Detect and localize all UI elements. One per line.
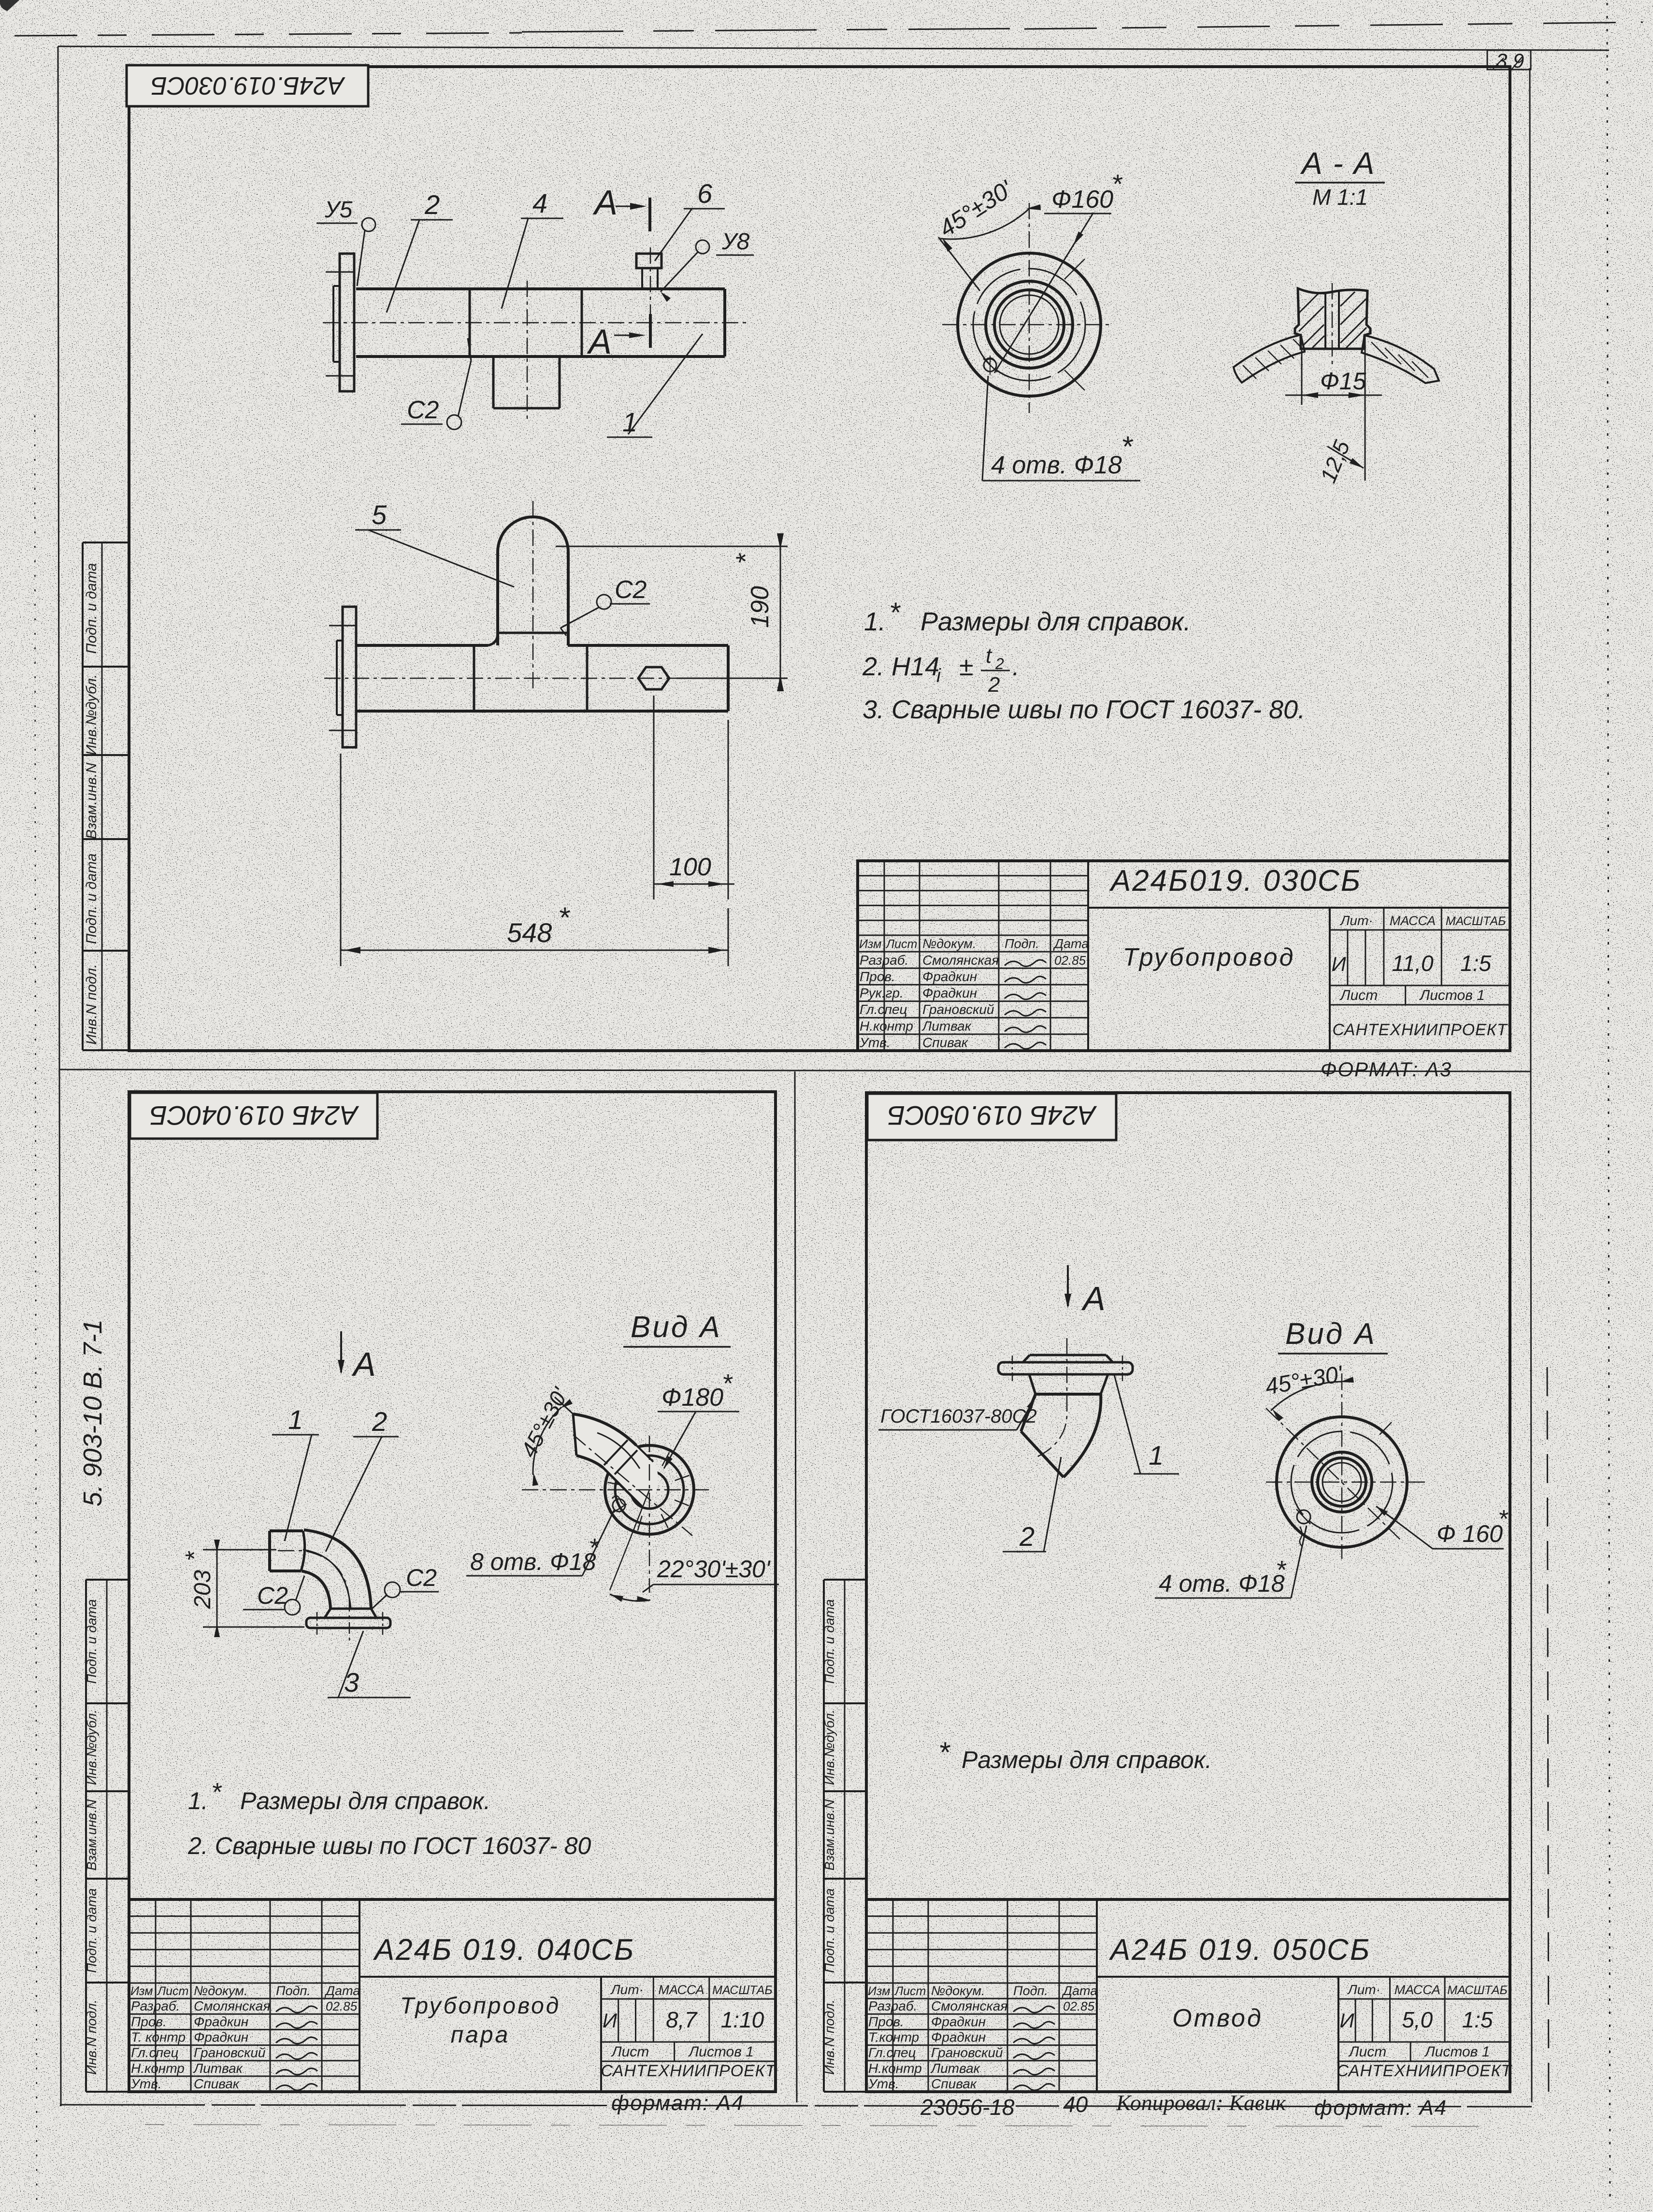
svg-text:Листов 1: Листов 1 [688,2044,754,2060]
svg-text:Лит·: Лит· [1339,913,1373,928]
svg-text:Утв.: Утв. [130,2076,162,2091]
svg-text:5. 903-10 В. 7-1: 5. 903-10 В. 7-1 [78,1319,107,1506]
svg-text:Фрадкин: Фрадкин [922,985,977,1000]
svg-text:Размеры для справок.: Размеры для справок. [920,607,1191,636]
svg-text:Дата: Дата [1062,1984,1097,1998]
svg-text:3. Сварные швы по ГОСТ 16: 3. Сварные швы по ГОСТ 16037- 80. [862,695,1305,724]
svg-text:Инв.N подл.: Инв.N подл. [822,1999,837,2075]
svg-text:2. Н14: 2. Н14 [862,652,939,681]
svg-text:И: И [1340,2009,1355,2032]
svg-text:И: И [603,2009,618,2032]
svg-text:Лист: Лист [894,1984,926,1998]
svg-text:№докум.: №докум. [931,1984,985,1998]
svg-text:*: * [730,553,761,564]
svg-text:23056-18: 23056-18 [920,2095,1015,2120]
svg-text:А24Б.019.030СБ: А24Б.019.030СБ [151,71,345,100]
svg-text:А: А [1081,1280,1106,1317]
svg-text:Размеры для справок.: Размеры для справок. [962,1746,1212,1773]
svg-text:Литвак: Литвак [921,1018,972,1033]
svg-text:190: 190 [746,586,774,628]
svg-text:Гл.спец: Гл.спец [131,2045,179,2060]
svg-text:А: А [587,323,612,361]
svg-text:Размеры для справок.: Размеры для справок. [240,1787,490,1814]
svg-text:i: i [936,665,941,686]
svg-text:*: * [558,901,570,934]
svg-text:МАССА: МАССА [1390,913,1436,928]
svg-text:Подп. и дата: Подп. и дата [84,1599,99,1684]
svg-text:2. Сварные швы по ГОСТ 16: 2. Сварные швы по ГОСТ 16037- 80 [187,1832,591,1859]
svg-text:548: 548 [507,917,552,948]
svg-text:МАСШТАБ: МАСШТАБ [1447,1984,1508,1997]
svg-text:Фрадкин: Фрадкин [931,2014,986,2029]
svg-text:2: 2 [1019,1521,1035,1552]
svg-text:Изм: Изм [859,938,881,951]
svg-text:Вид А: Вид А [1285,1317,1377,1351]
svg-text:40: 40 [1063,2092,1088,2117]
svg-text:Фрадкин: Фрадкин [194,2030,248,2045]
svg-text:Изм: Изм [868,1984,890,1998]
svg-text:Лит·: Лит· [610,1982,643,1997]
svg-text:*: * [1498,1505,1509,1533]
svg-text:5: 5 [372,499,387,530]
svg-text:2: 2 [424,189,440,220]
svg-text:Утв.: Утв. [868,2076,899,2091]
svg-text:02.85: 02.85 [326,1999,358,2013]
svg-text:1:10: 1:10 [721,2007,764,2032]
svg-text:1: 1 [288,1404,303,1435]
svg-text:Гл.спец: Гл.спец [860,1002,907,1017]
svg-text:*: * [722,1369,733,1398]
svg-text:Инв.N подл.: Инв.N подл. [84,1999,99,2075]
svg-text:1:5: 1:5 [1462,2007,1493,2032]
svg-text:Смолянская: Смолянская [931,1998,1007,2013]
svg-text:Копировал: Кавик: Копировал: Кавик [1116,2090,1286,2115]
svg-text:Ф160: Ф160 [1051,186,1113,214]
svg-text:2: 2 [372,1406,387,1437]
svg-text:Трубопровод: Трубопровод [400,1993,561,2019]
svg-text:22°30'±30': 22°30'±30' [657,1556,771,1583]
svg-text:8 отв. Ф18: 8 отв. Ф18 [470,1548,596,1575]
svg-text:Литвак: Литвак [193,2061,244,2076]
svg-text:пара: пара [451,2022,510,2048]
svg-text:203: 203 [190,1570,216,1609]
svg-text:Н.контр: Н.контр [868,2061,922,2076]
svg-text:Т.контр: Т.контр [868,2030,919,2045]
svg-text:А - А: А - А [1300,146,1375,181]
svg-text:3: 3 [344,1667,359,1698]
svg-text:*: * [181,1551,209,1561]
svg-text:Грановский: Грановский [194,2045,266,2060]
svg-text:Подп. и дата: Подп. и дата [84,854,100,944]
svg-text:Подп.: Подп. [1005,937,1039,951]
svg-text:Подп. и дата: Подп. и дата [84,1888,99,1973]
svg-text:4 отв. Ф18: 4 отв. Ф18 [991,451,1122,479]
svg-text:Фрадкин: Фрадкин [194,2014,248,2029]
svg-text:Инв.№дубл.: Инв.№дубл. [822,1710,837,1785]
svg-text:2: 2 [988,673,1000,697]
svg-text:Т. контр: Т. контр [131,2030,186,2045]
svg-text:А24Б 019.040СБ: А24Б 019.040СБ [150,1100,359,1131]
svg-text:02.85: 02.85 [1063,1999,1095,2013]
svg-text:*: * [1121,430,1133,463]
svg-text:формат: А4: формат: А4 [611,2091,744,2115]
svg-text:Н.контр: Н.контр [860,1018,913,1033]
svg-text:№докум.: №докум. [194,1984,247,1998]
svg-text:Пров.: Пров. [860,969,895,984]
svg-text:Лит·: Лит· [1347,1982,1380,1997]
svg-text:Листов 1: Листов 1 [1424,2044,1490,2060]
svg-text:Взам.инв.N: Взам.инв.N [822,1799,837,1870]
svg-text:*: * [1276,1556,1287,1584]
svg-text:Грановский: Грановский [922,1002,994,1017]
svg-text:ГОСТ16037-80С2: ГОСТ16037-80С2 [880,1406,1037,1427]
svg-text:А24Б019. 030СБ: А24Б019. 030СБ [1109,864,1362,898]
svg-text:Подп. и дата: Подп. и дата [822,1888,837,1973]
svg-text:МАСШТАБ: МАСШТАБ [1446,914,1506,928]
svg-text:Гл.спец: Гл.спец [868,2045,916,2060]
svg-text:Рук.гр.: Рук.гр. [860,985,904,1000]
svg-text:*: * [938,1736,950,1769]
svg-text:Лист: Лист [611,2044,649,2060]
svg-text:Пров.: Пров. [131,2014,167,2029]
svg-text:Отвод: Отвод [1172,2004,1263,2032]
svg-text:А: А [592,184,618,222]
svg-text:М 1:1: М 1:1 [1312,185,1368,210]
svg-text:Разраб.: Разраб. [131,1998,180,2013]
svg-text:±: ± [959,652,974,681]
svg-text:А24Б 019. 050СБ: А24Б 019. 050СБ [1108,1933,1371,1967]
svg-text:Лист: Лист [885,938,917,951]
svg-text:Смолянская: Смолянская [922,953,999,968]
svg-text:.: . [1012,652,1020,681]
svg-text:ФОРМАТ: А3: ФОРМАТ: А3 [1321,1058,1452,1081]
svg-text:МАСШТАБ: МАСШТАБ [712,1984,773,1997]
svg-text:У8: У8 [721,229,750,255]
svg-text:Смолянская: Смолянская [194,1998,270,2013]
svg-text:И: И [1331,953,1346,975]
svg-text:Лист: Лист [1348,2044,1386,2060]
svg-text:Ф 160: Ф 160 [1437,1520,1503,1547]
svg-text:Лист: Лист [1339,987,1378,1003]
svg-text:02.85: 02.85 [1054,953,1086,968]
svg-text:1.: 1. [188,1787,208,1814]
svg-text:формат: А4: формат: А4 [1314,2096,1447,2120]
svg-text:4 отв. Ф18: 4 отв. Ф18 [1159,1570,1285,1597]
svg-text:Подп. и дата: Подп. и дата [84,563,100,654]
svg-text:11,0: 11,0 [1392,951,1434,976]
svg-text:1.: 1. [864,607,886,636]
svg-text:Взам.инв.N: Взам.инв.N [84,763,100,839]
svg-text:МАССА: МАССА [1394,1983,1440,1997]
svg-text:Н.контр: Н.контр [131,2061,185,2076]
svg-text:Подп.: Подп. [1013,1984,1048,1998]
svg-text:Изм: Изм [130,1984,153,1998]
svg-text:Ф15: Ф15 [1320,368,1366,395]
svg-text:8,7: 8,7 [666,2007,697,2032]
svg-text:Инв.№дубл.: Инв.№дубл. [84,674,100,756]
svg-text:№докум.: №докум. [922,937,976,951]
svg-text:А24Б 019.050СБ: А24Б 019.050СБ [888,1100,1097,1131]
svg-text:Инв.N подл.: Инв.N подл. [84,964,100,1045]
svg-text:5,0: 5,0 [1402,2007,1433,2032]
svg-text:100: 100 [669,853,711,881]
svg-text:Подп. и дата: Подп. и дата [822,1599,837,1684]
svg-text:1:5: 1:5 [1460,951,1491,976]
svg-text:Взам.инв.N: Взам.инв.N [84,1799,99,1870]
svg-text:Разраб.: Разраб. [868,1998,917,2013]
svg-text:Дата: Дата [324,1984,360,1998]
svg-text:Трубопровод: Трубопровод [1123,943,1295,971]
svg-text:Подп.: Подп. [276,1984,311,1998]
svg-text:Фрадкин: Фрадкин [931,2030,986,2045]
svg-text:Спивак: Спивак [194,2076,240,2091]
svg-text:1: 1 [1149,1440,1164,1470]
svg-text:C2: C2 [407,396,439,424]
svg-text:C2: C2 [615,576,647,604]
svg-text:C2: C2 [257,1582,288,1609]
svg-text:Спивак: Спивак [922,1035,969,1050]
svg-text:Грановский: Грановский [931,2045,1003,2060]
svg-text:А24Б 019. 040СБ: А24Б 019. 040СБ [373,1933,635,1967]
svg-text:Вид А: Вид А [631,1311,722,1344]
svg-text:4: 4 [532,188,547,218]
svg-text:Дата: Дата [1053,937,1089,951]
svg-text:*: * [1111,169,1123,199]
svg-text:Утв.: Утв. [859,1035,891,1050]
svg-text:t: t [986,644,992,668]
svg-text:Разраб.: Разраб. [860,953,908,968]
svg-text:C2: C2 [406,1564,437,1591]
svg-text:А: А [351,1345,376,1383]
svg-text:Спивак: Спивак [931,2076,977,2091]
svg-text:Лист: Лист [157,1984,188,1998]
svg-text:Пров.: Пров. [868,2014,904,2029]
svg-text:САНТЕХНИИПРОЕКТ: САНТЕХНИИПРОЕКТ [1337,2062,1512,2080]
svg-text:Фрадкин: Фрадкин [922,969,977,984]
svg-text:Листов 1: Листов 1 [1419,987,1485,1003]
svg-text:Инв.№дубл.: Инв.№дубл. [84,1710,99,1785]
svg-text:САНТЕХНИИПРОЕКТ: САНТЕХНИИПРОЕКТ [601,2062,776,2080]
svg-text:МАССА: МАССА [659,1983,704,1997]
svg-text:Ф180: Ф180 [661,1384,723,1412]
svg-text:6: 6 [697,178,713,209]
svg-text:САНТЕХНИИПРОЕКТ: САНТЕХНИИПРОЕКТ [1332,1021,1508,1039]
svg-text:*: * [889,597,901,628]
svg-text:У5: У5 [324,197,353,223]
svg-text:*: * [211,1778,222,1807]
svg-text:Литвак: Литвак [930,2061,981,2076]
